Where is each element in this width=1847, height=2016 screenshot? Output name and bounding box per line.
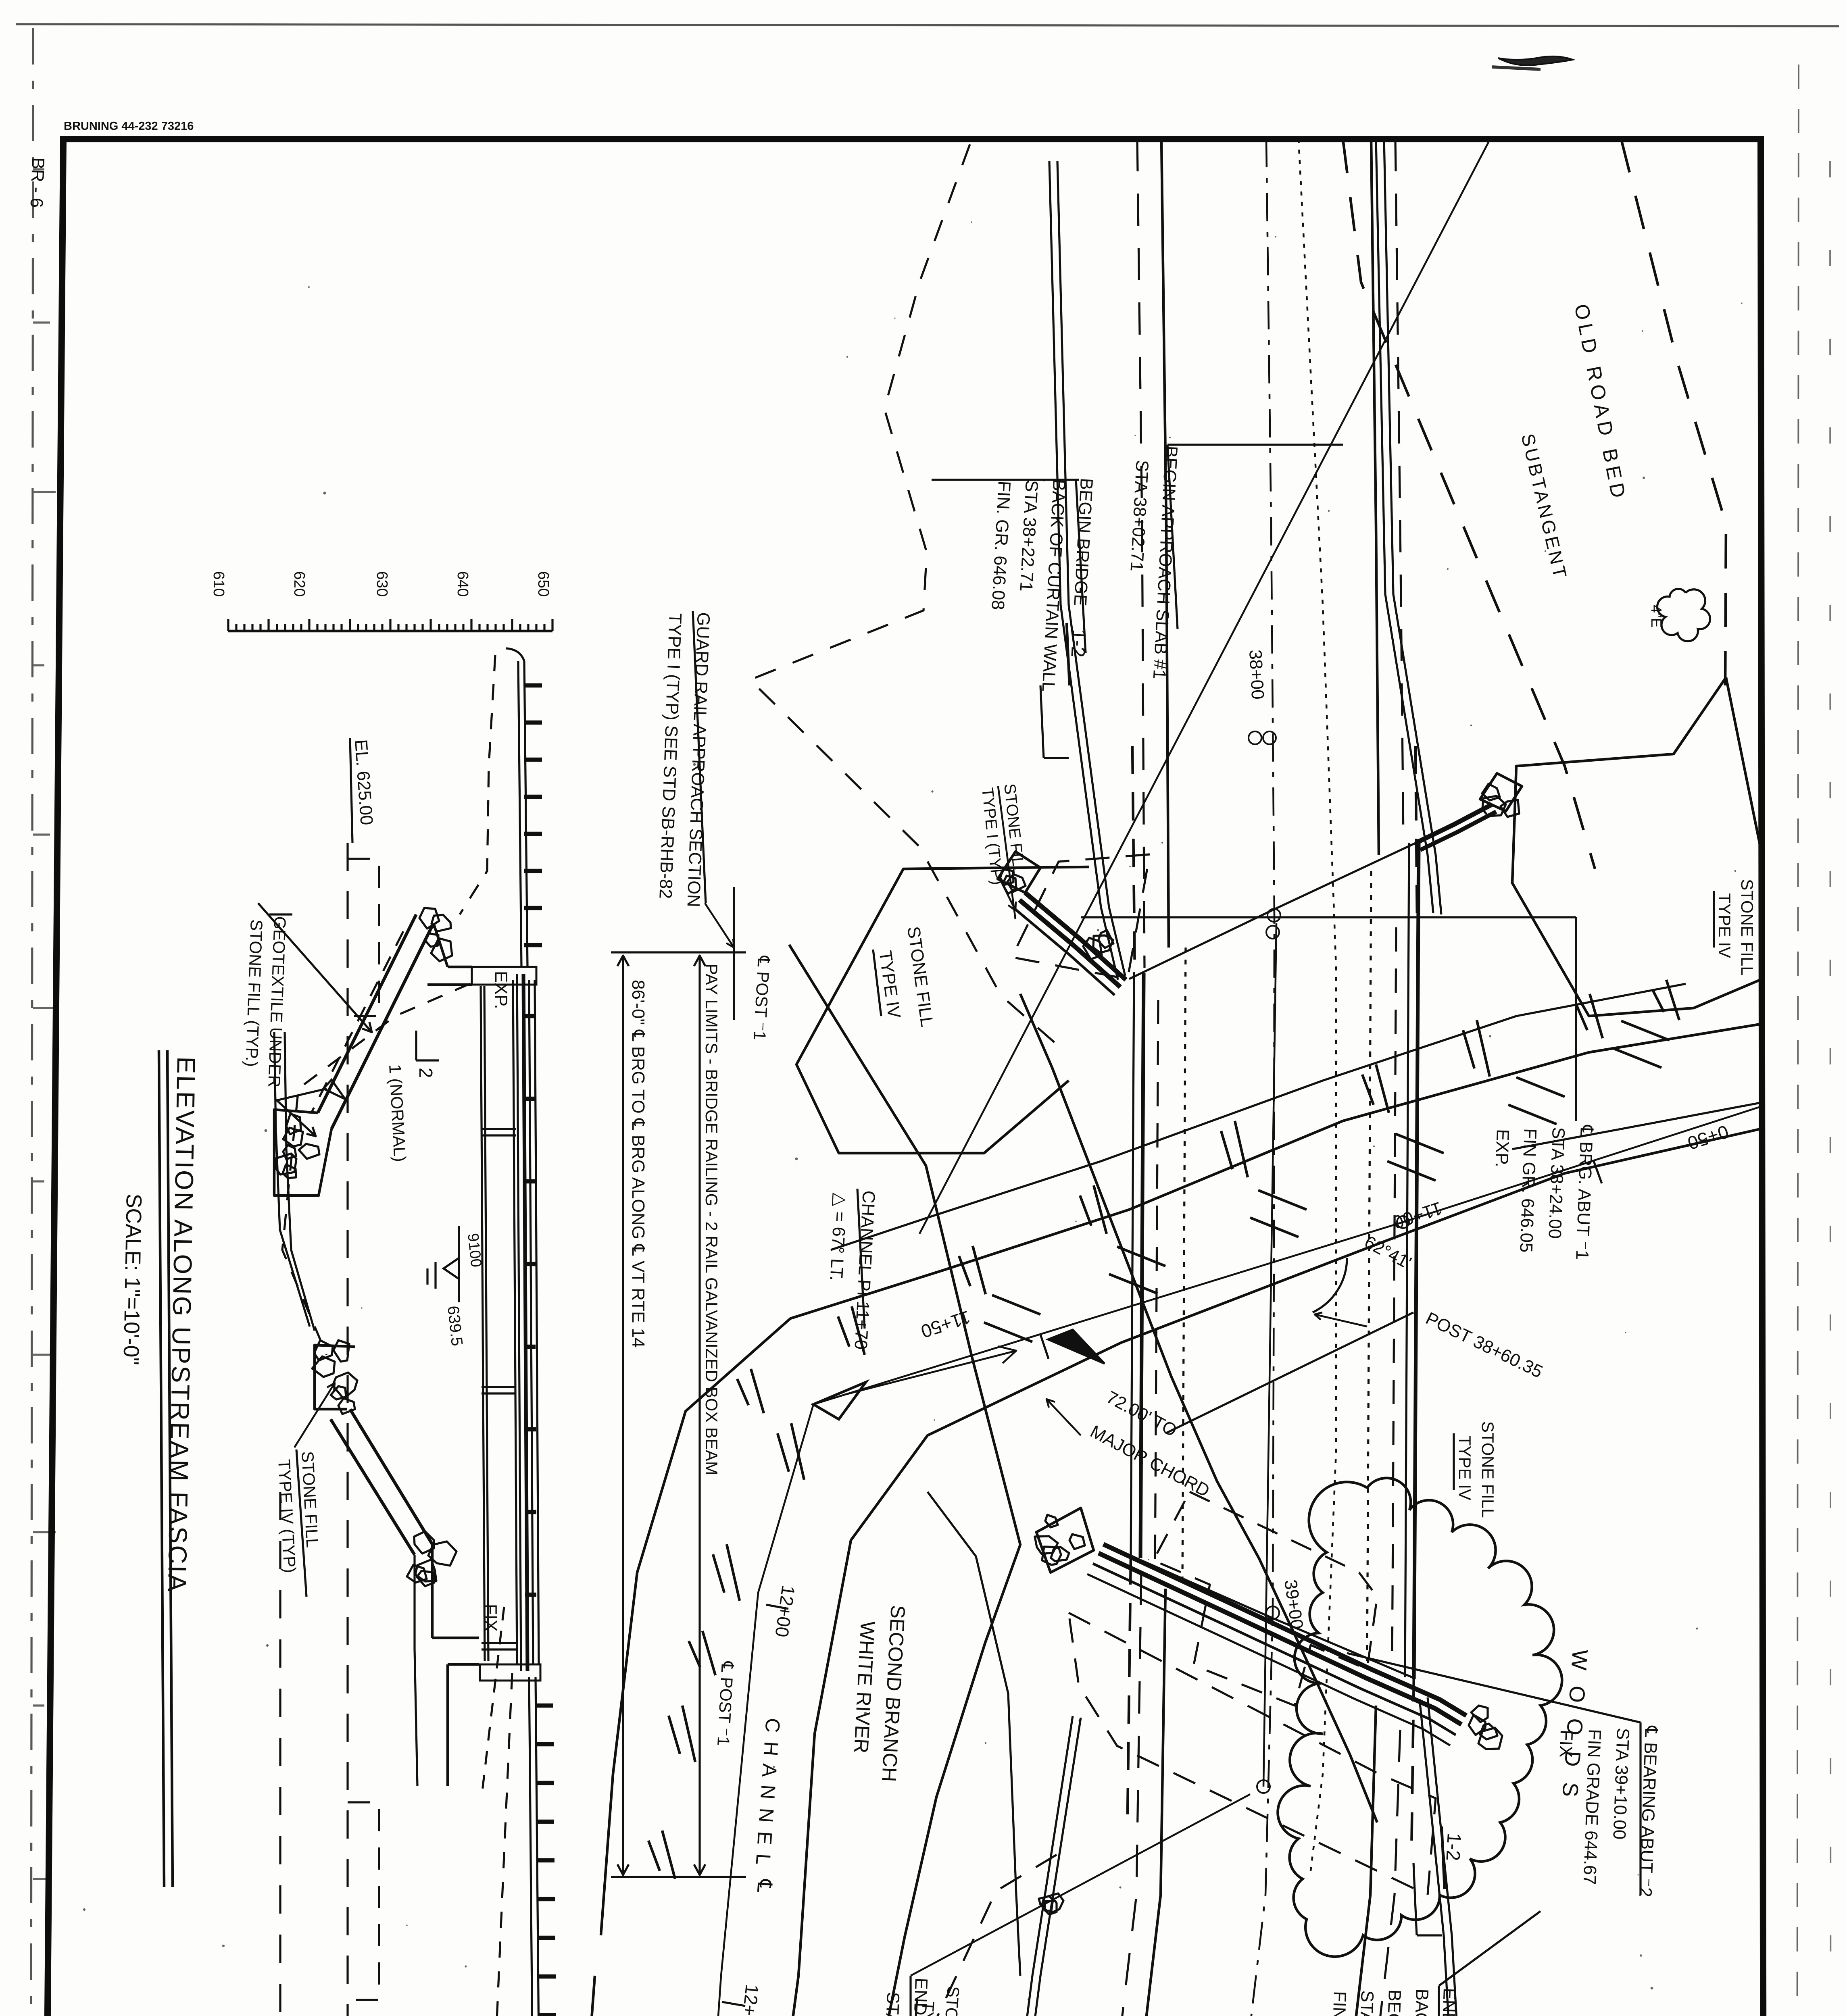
svg-text:STONE FILL: STONE FILL xyxy=(1478,1421,1497,1518)
svg-text:BEGIN BRIDGE: BEGIN BRIDGE xyxy=(1070,477,1097,606)
svg-text:610: 610 xyxy=(210,571,227,597)
svg-text:STA 39+10.00: STA 39+10.00 xyxy=(1609,1728,1633,1840)
svg-text:EXP.: EXP. xyxy=(491,971,511,1009)
svg-text:MAJOR CHORD: MAJOR CHORD xyxy=(1087,1422,1213,1501)
svg-text:639.5: 639.5 xyxy=(444,1305,466,1347)
svg-text:620: 620 xyxy=(291,571,308,597)
svg-text:12+50: 12+50 xyxy=(737,1983,763,2016)
svg-text:℄ POST ⁻1: ℄ POST ⁻1 xyxy=(750,955,773,1041)
svg-text:BEGIN APPROACH SLAB #1: BEGIN APPROACH SLAB #1 xyxy=(1149,445,1181,679)
svg-text:STA 38+24.00: STA 38+24.00 xyxy=(1545,1127,1568,1239)
svg-text:℄ BEARING ABUT ⁻2: ℄ BEARING ABUT ⁻2 xyxy=(1635,1725,1661,1897)
svg-text:1 (NORMAL): 1 (NORMAL) xyxy=(386,1064,410,1162)
svg-text:640: 640 xyxy=(454,571,471,597)
svg-text:℄ BRG. ABUT ⁻1: ℄ BRG. ABUT ⁻1 xyxy=(1572,1125,1597,1260)
svg-text:SECOND BRANCH: SECOND BRANCH xyxy=(878,1604,909,1782)
svg-text:STONE FILL: STONE FILL xyxy=(1738,879,1757,976)
svg-text:SUBTANGENT: SUBTANGENT xyxy=(1517,432,1571,582)
svg-text:C H A N N E L: C H A N N E L xyxy=(751,1717,784,1867)
svg-text:STA 38+22.71: STA 38+22.71 xyxy=(1016,479,1042,592)
svg-text:TYPE IV: TYPE IV xyxy=(1455,1435,1474,1500)
svg-text:12+00: 12+00 xyxy=(771,1584,799,1639)
svg-text:POST 38+60.35: POST 38+60.35 xyxy=(1423,1308,1546,1382)
svg-text:FIX: FIX xyxy=(1556,1730,1576,1758)
svg-text:STONE FILL (TYP.): STONE FILL (TYP.) xyxy=(242,919,266,1067)
svg-text:STONE FILL: STONE FILL xyxy=(903,925,937,1028)
svg-text:TYPE I (TYP) SEE STD SB-RHB-82: TYPE I (TYP) SEE STD SB-RHB-82 xyxy=(655,613,685,899)
svg-text:STA 39+31.34: STA 39+31.34 xyxy=(879,1992,903,2016)
svg-text:EXP.: EXP. xyxy=(1492,1129,1513,1168)
svg-text:38+00: 38+00 xyxy=(1245,649,1267,700)
svg-text:630: 630 xyxy=(373,571,390,597)
svg-text:BACK OF CURTAIN WALL: BACK OF CURTAIN WALL xyxy=(1405,1989,1432,2016)
svg-text:BR - 6: BR - 6 xyxy=(27,157,48,208)
svg-text:△ = 67° LT.: △ = 67° LT. xyxy=(826,1192,851,1281)
svg-text:4"E: 4"E xyxy=(1648,605,1665,628)
svg-text:WHITE RIVER: WHITE RIVER xyxy=(850,1620,879,1754)
svg-text:1-2: 1-2 xyxy=(1067,629,1090,658)
svg-text:650: 650 xyxy=(535,571,552,597)
svg-text:STA 39+11.34: STA 39+11.34 xyxy=(1353,1990,1377,2016)
svg-text:TYPE IV: TYPE IV xyxy=(1715,893,1734,958)
svg-text:9100: 9100 xyxy=(464,1233,485,1268)
svg-text:FIX: FIX xyxy=(481,1604,500,1631)
svg-text:1-2: 1-2 xyxy=(1442,1832,1465,1861)
svg-text:TYPE I (TYP): TYPE I (TYP) xyxy=(978,787,1006,886)
svg-text:℄ POST ⁻1: ℄ POST ⁻1 xyxy=(714,1661,737,1747)
svg-text:FIN. GR. 644.66: FIN. GR. 644.66 xyxy=(1326,1991,1350,2016)
svg-text:PAY LIMITS - BRIDGE RAILING -: PAY LIMITS - BRIDGE RAILING - 2 RAIL GAL… xyxy=(702,964,721,1475)
svg-text:STA 38+02.71: STA 38+02.71 xyxy=(1127,459,1152,572)
svg-text:86'-0" ℄ BRG TO ℄ BRG ALON: 86'-0" ℄ BRG TO ℄ BRG ALONG ℄ VT RTE 14 xyxy=(628,980,648,1347)
svg-text:℄: ℄ xyxy=(753,1878,776,1893)
svg-text:FIN. GR. 646.08: FIN. GR. 646.08 xyxy=(988,480,1014,610)
svg-text:SCALE: 1"=10'-0": SCALE: 1"=10'-0" xyxy=(119,1193,146,1365)
svg-text:STONE FILL: STONE FILL xyxy=(937,1985,963,2016)
svg-text:TYPE IV (TYP): TYPE IV (TYP) xyxy=(275,1459,300,1573)
svg-text:EL. 625.00: EL. 625.00 xyxy=(351,739,377,826)
svg-text:BACK OF CURTAIN WALL: BACK OF CURTAIN WALL xyxy=(1038,479,1069,692)
svg-text:2: 2 xyxy=(415,1068,436,1078)
svg-text:BRUNING 44-232 73216: BRUNING 44-232 73216 xyxy=(64,120,194,133)
svg-text:OLD ROAD BED: OLD ROAD BED xyxy=(1570,302,1630,503)
